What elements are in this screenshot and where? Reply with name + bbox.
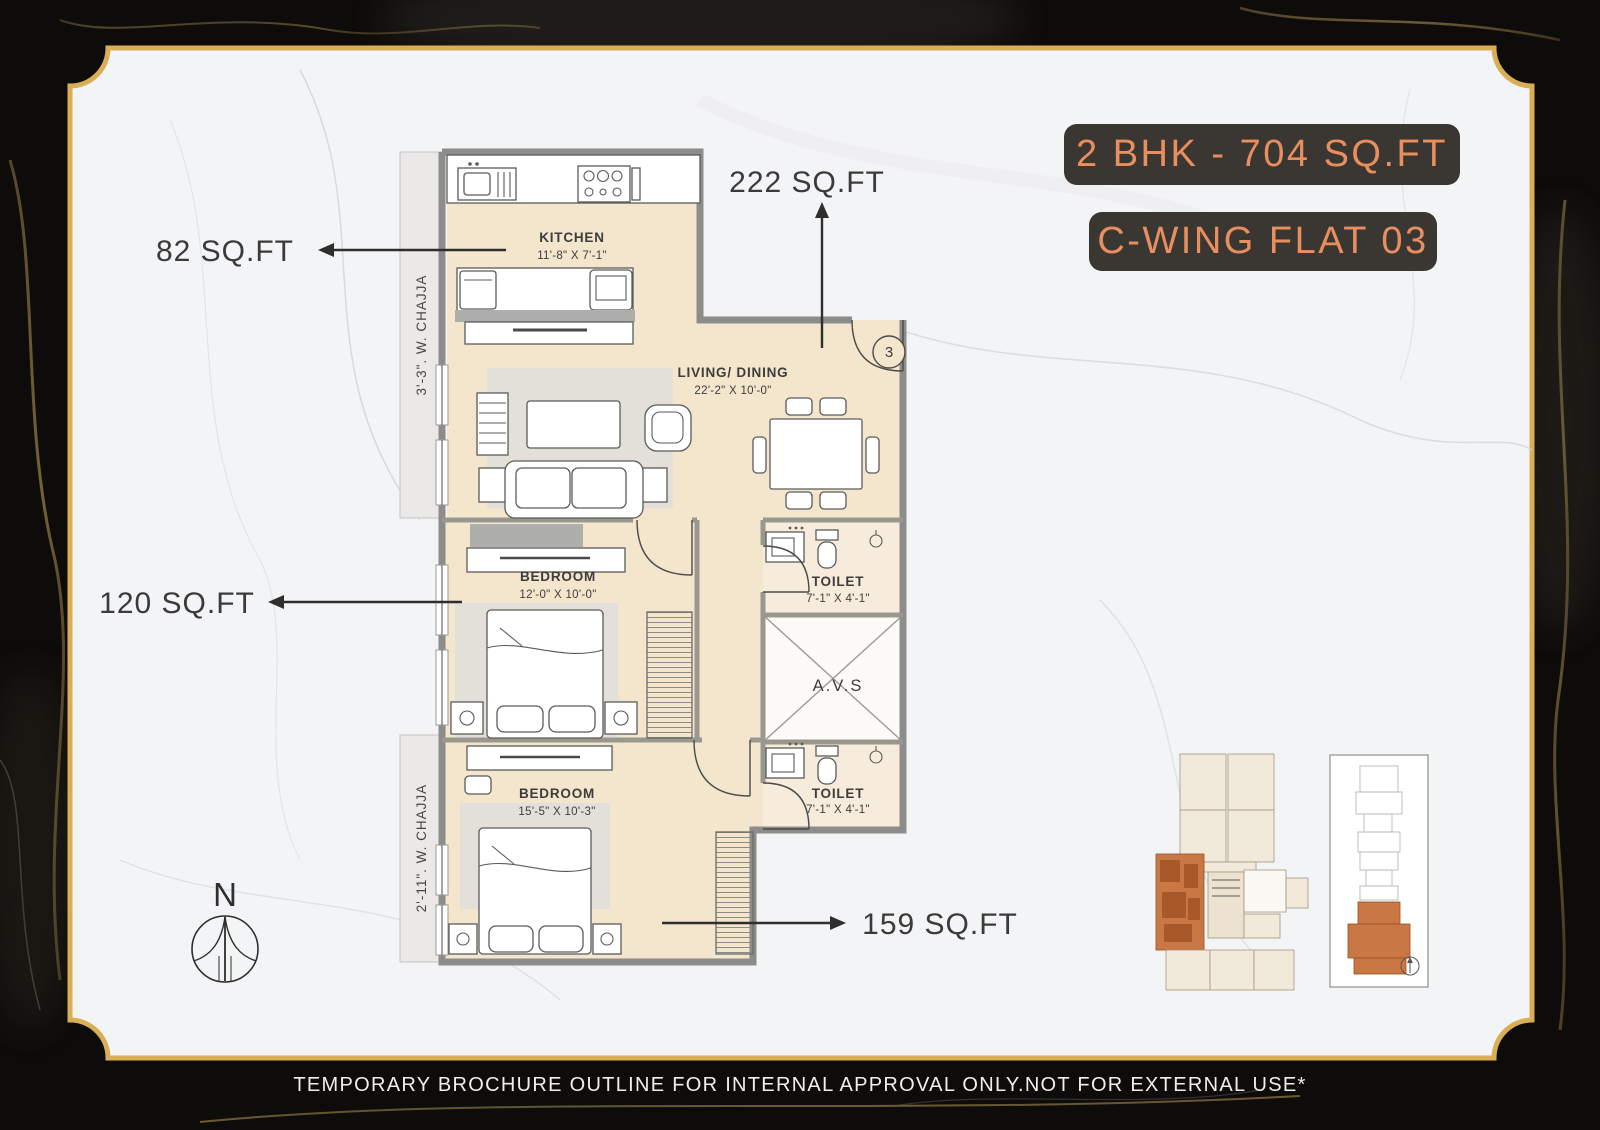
- coffee-table: [527, 401, 620, 448]
- callout-bedroom1: 120 SQ.FT: [99, 587, 255, 620]
- avs-shaft: A.V.S: [763, 615, 903, 742]
- bedroom2-dims: 15'-5" X 10'-3": [518, 806, 595, 818]
- keyplan-tower: [1330, 755, 1428, 987]
- toilet1-name: TOILET: [812, 574, 865, 589]
- kitchen-dims: 11'-8" X 7'-1": [537, 250, 607, 262]
- bedroom1-dims: 12'-0" X 10'-0": [519, 589, 596, 601]
- living-name: LIVING/ DINING: [678, 365, 789, 380]
- flat-number-badge: 3: [873, 336, 905, 368]
- footer-disclaimer: TEMPORARY BROCHURE OUTLINE FOR INTERNAL …: [0, 1074, 1600, 1097]
- callout-kitchen: 82 SQ.FT: [156, 235, 294, 268]
- flat-number: 3: [885, 344, 893, 361]
- callout-living: 222 SQ.FT: [729, 166, 885, 199]
- unit-area-badge: 2 BHK - 704 SQ.FT: [1064, 124, 1460, 185]
- kitchen-fridge: [460, 271, 496, 309]
- toilet1-dims: 7'-1" X 4'-1": [806, 593, 870, 605]
- unit-area-badge-label: 2 BHK - 704 SQ.FT: [1076, 133, 1448, 176]
- dining-table: [770, 419, 862, 489]
- keyplan-highlight-unit: [1156, 854, 1204, 950]
- avs-label: A.V.S: [813, 677, 864, 695]
- kitchen-name: KITCHEN: [539, 230, 605, 245]
- bedroom2-wardrobe: [716, 832, 753, 954]
- brochure-page: 3'-3". W. CHAJJA 2'-11". W. CHAJJA A.V.S: [0, 0, 1600, 1130]
- bedroom1-wardrobe: [647, 612, 692, 738]
- callout-bedroom2: 159 SQ.FT: [862, 908, 1018, 941]
- toilet2-dims: 7'-1" X 4'-1": [806, 804, 870, 816]
- bedroom1-name: BEDROOM: [520, 569, 596, 584]
- chajja-top-label: 3'-3". W. CHAJJA: [414, 275, 429, 396]
- north-label: N: [213, 876, 237, 913]
- chajja-bottom-label: 2'-11". W. CHAJJA: [414, 784, 429, 912]
- bedroom2-name: BEDROOM: [519, 786, 595, 801]
- bookshelf: [477, 393, 508, 455]
- flat-badge: C-WING FLAT 03: [1089, 212, 1437, 271]
- windows: [436, 365, 448, 955]
- living-dims: 22'-2" X 10'-0": [694, 385, 771, 397]
- kitchen-hob: [578, 166, 630, 202]
- toilet2-name: TOILET: [812, 786, 865, 801]
- flat-badge-label: C-WING FLAT 03: [1097, 220, 1428, 263]
